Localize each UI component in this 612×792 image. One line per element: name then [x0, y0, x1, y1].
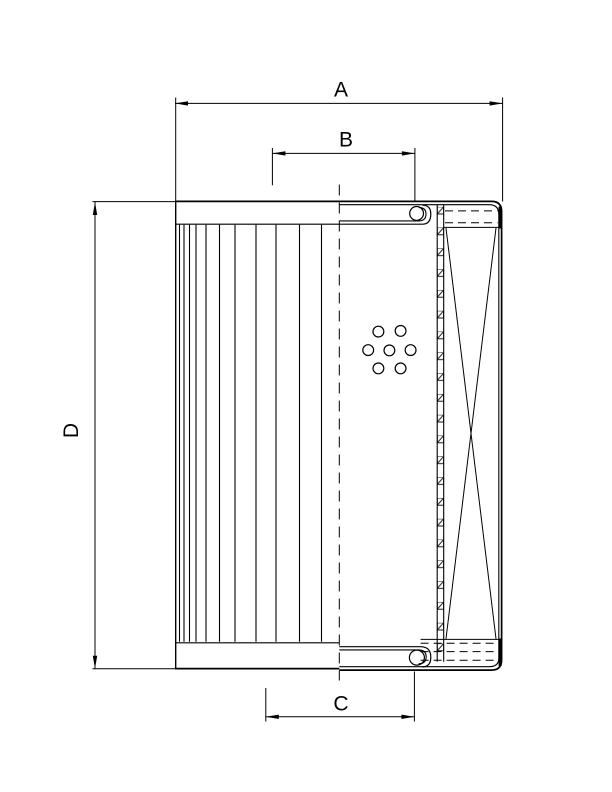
dim-label-D: D: [60, 423, 83, 438]
pleated-media: [176, 224, 322, 643]
potting-top: [444, 211, 499, 228]
potting-bottom: [421, 639, 499, 660]
dim-B: B: [272, 129, 415, 202]
shell-section-fill-top: [499, 207, 502, 229]
bottom-end-cap: [175, 643, 431, 669]
dim-label-C: C: [333, 693, 348, 716]
dim-B-arrow-left: [272, 151, 285, 155]
dim-A-arrow-left: [175, 101, 188, 105]
dim-C-arrow-right: [401, 715, 414, 719]
dim-C: C: [266, 672, 415, 722]
perforation-holes: [363, 326, 416, 374]
outer-shell: [175, 201, 502, 670]
dim-D-arrow-bottom: [93, 656, 97, 669]
dim-D: D: [60, 202, 176, 669]
core-tube-hatch: [437, 207, 444, 662]
core-tube: [437, 205, 444, 662]
shell-section-fill-bottom: [499, 639, 502, 667]
dim-A-arrow-right: [490, 101, 503, 105]
dim-D-arrow-top: [93, 202, 97, 215]
dim-label-B: B: [339, 129, 353, 152]
o-ring-bottom-seal: [409, 650, 424, 665]
dim-B-arrow-right: [402, 151, 415, 155]
drawing-canvas: A B C D: [0, 0, 612, 792]
dim-C-arrow-left: [266, 715, 279, 719]
o-ring-top-seal: [410, 207, 424, 221]
filter-technical-drawing: A B C D: [0, 0, 612, 792]
support-cross-brace: [446, 228, 496, 639]
dim-label-A: A: [334, 79, 348, 102]
